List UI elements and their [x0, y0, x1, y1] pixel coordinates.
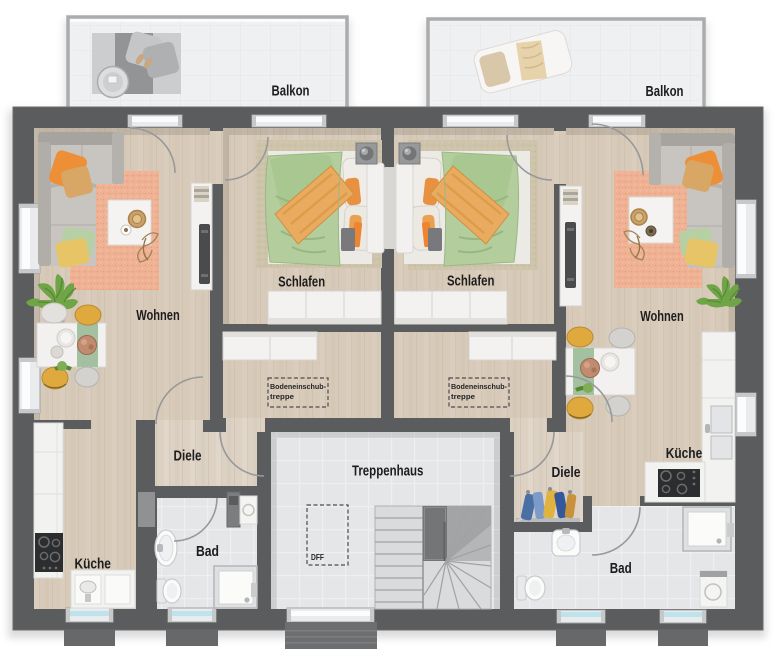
svg-text:Wohnen: Wohnen	[640, 308, 684, 325]
svg-text:Bad: Bad	[610, 560, 632, 577]
svg-text:Diele: Diele	[552, 464, 581, 481]
svg-text:Treppenhaus: Treppenhaus	[352, 462, 424, 479]
svg-text:Schlafen: Schlafen	[278, 273, 325, 290]
svg-text:Diele: Diele	[174, 448, 202, 465]
svg-text:Bad: Bad	[196, 543, 219, 560]
svg-text:treppe: treppe	[451, 392, 475, 401]
svg-text:Balkon: Balkon	[272, 82, 310, 99]
svg-text:Küche: Küche	[666, 445, 703, 462]
svg-text:Wohnen: Wohnen	[136, 307, 180, 324]
svg-text:Bodeneinschub-: Bodeneinschub-	[451, 382, 507, 391]
svg-text:Schlafen: Schlafen	[447, 273, 495, 290]
svg-text:DFF: DFF	[311, 553, 324, 562]
svg-text:Bodeneinschub-: Bodeneinschub-	[270, 382, 326, 391]
svg-text:treppe: treppe	[270, 392, 294, 401]
svg-text:Balkon: Balkon	[646, 83, 684, 100]
svg-text:Küche: Küche	[74, 555, 111, 572]
